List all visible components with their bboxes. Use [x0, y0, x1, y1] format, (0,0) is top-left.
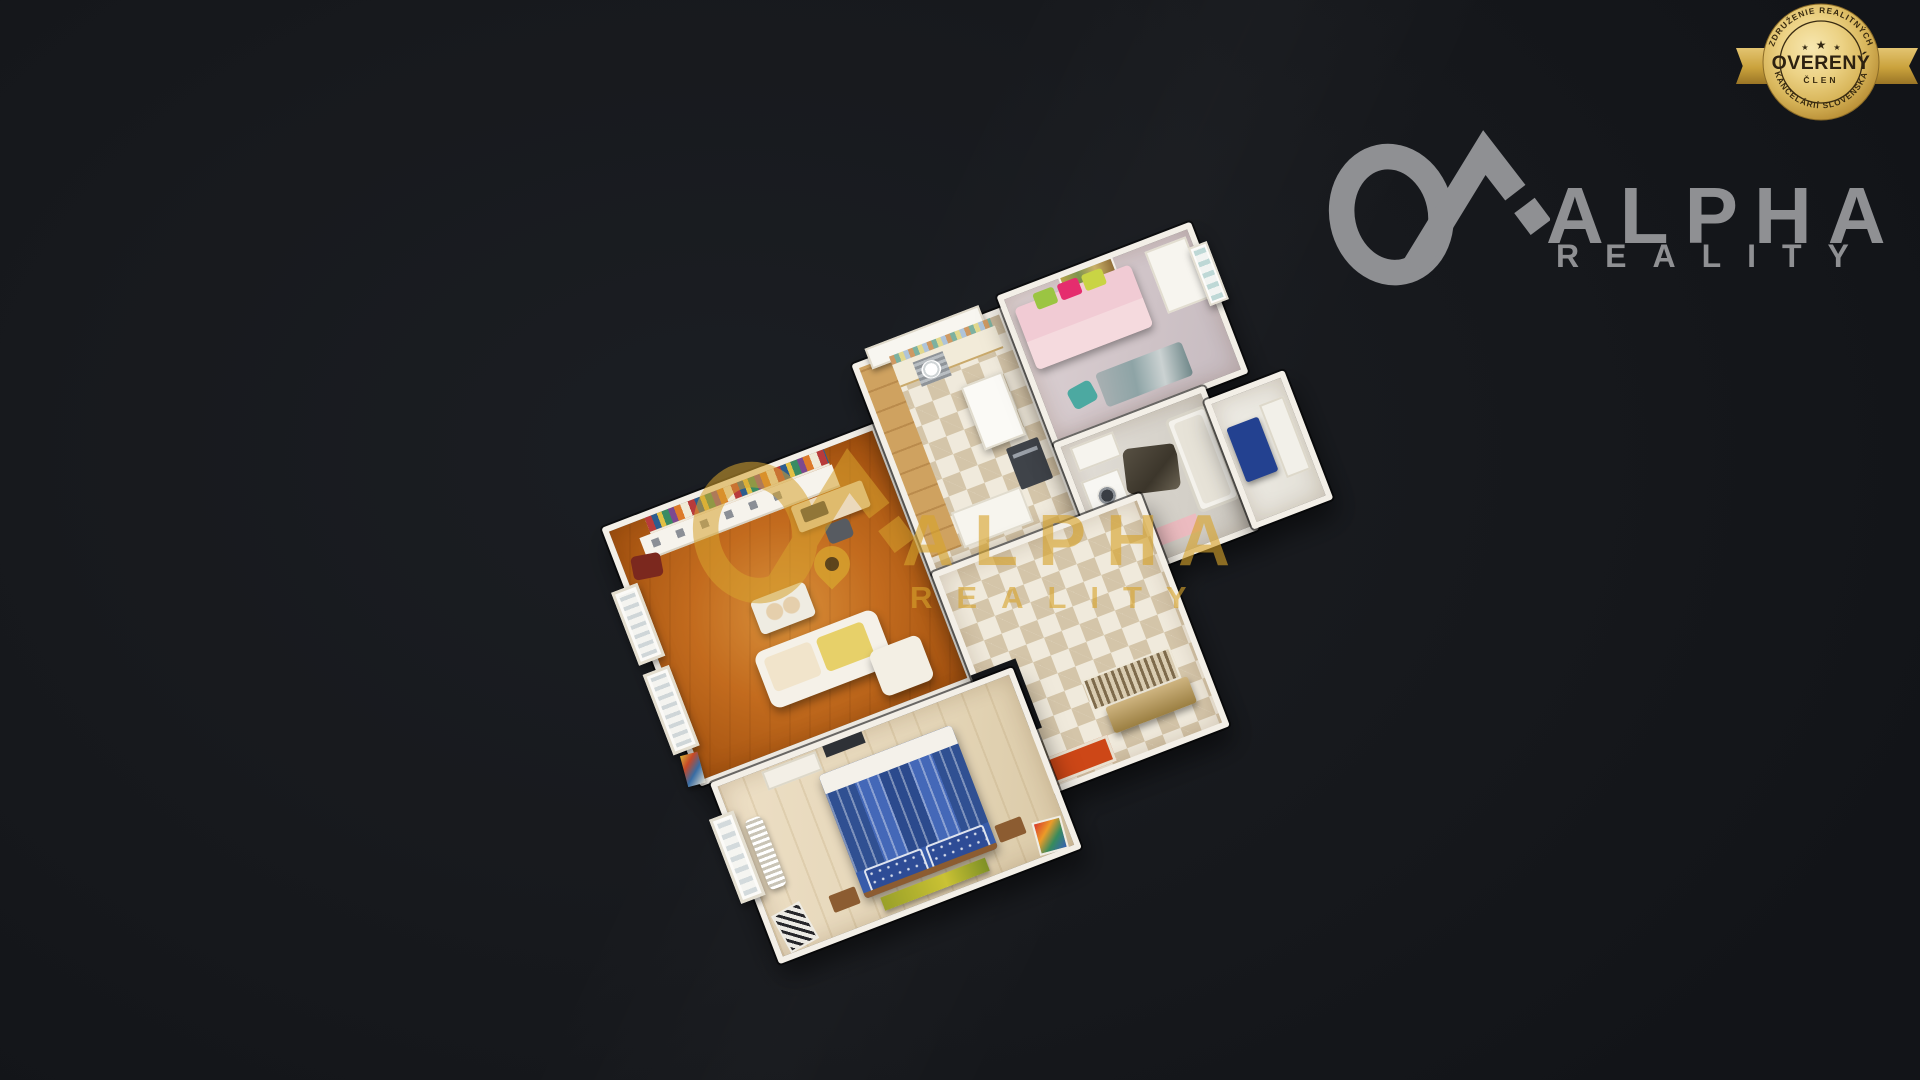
- badge-title: OVERENÝ: [1772, 50, 1871, 74]
- doormat: [1045, 735, 1117, 785]
- star-icon: ★: [1833, 43, 1840, 52]
- badge-seal: ZDRUŽENIE REALITNÝCH KANCELÁRIÍ SLOVENSK…: [1761, 2, 1881, 122]
- window: [611, 583, 665, 666]
- screenshot-background: ALPHA REALITY ALPHA REALITY: [0, 0, 1920, 1080]
- wall-art: [680, 752, 706, 788]
- oven: [1006, 437, 1054, 490]
- verified-badge: ZDRUŽENIE REALITNÝCH KANCELÁRIÍ SLOVENSK…: [1726, 0, 1920, 132]
- wall-art: [1031, 815, 1069, 856]
- armchair: [630, 552, 664, 581]
- window: [643, 665, 700, 755]
- logo-wordmark-reality: REALITY: [1556, 238, 1875, 275]
- nightstand: [828, 886, 861, 913]
- star-icon: ★: [1816, 38, 1827, 52]
- floorplan-3d-view[interactable]: [574, 214, 1395, 943]
- zebra-art: [771, 901, 819, 953]
- tall-cabinet: [961, 371, 1026, 450]
- badge-subtitle: ČLEN: [1803, 74, 1838, 85]
- alpha-roof-icon: [1322, 106, 1550, 294]
- coffee-table: [750, 581, 817, 635]
- nightstand: [994, 816, 1027, 843]
- star-icon: ★: [1801, 43, 1808, 52]
- sink: [1070, 431, 1122, 472]
- scan-artifact: [1122, 443, 1181, 495]
- chair: [1066, 379, 1099, 411]
